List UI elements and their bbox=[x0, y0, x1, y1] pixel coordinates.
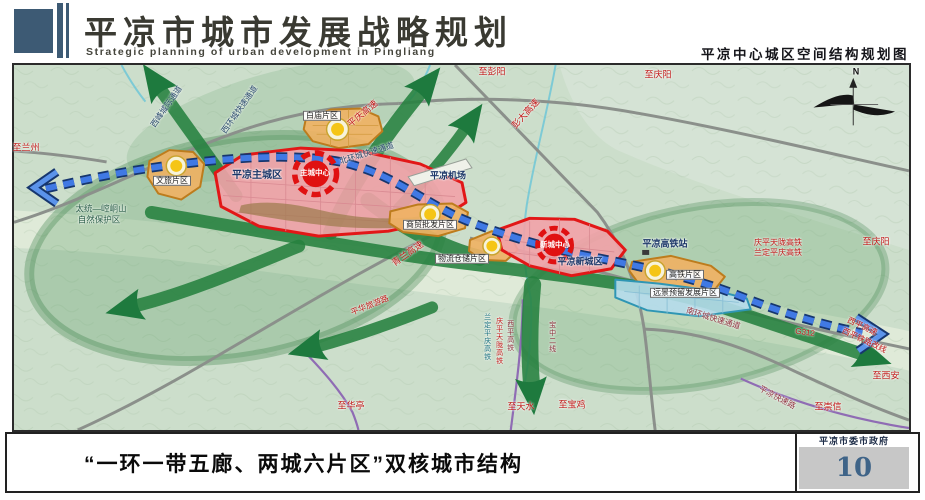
map-label: 至庆阳 bbox=[644, 70, 671, 79]
map-label: 平凉高铁站 bbox=[642, 239, 687, 248]
page-number: 10 bbox=[836, 453, 872, 483]
map-label: 文旅片区 bbox=[153, 176, 191, 186]
header-decor-bar bbox=[57, 3, 63, 58]
map-label: 至西安 bbox=[872, 371, 899, 380]
map-label: 西平高铁 bbox=[506, 320, 513, 352]
map-label: 至天水 bbox=[507, 402, 534, 411]
map-label: 平凉新城区 bbox=[557, 257, 602, 266]
map-label: 商贸批发片区 bbox=[403, 220, 457, 230]
map-label: 至庆阳 bbox=[862, 237, 889, 246]
map-label: 宝中二线 bbox=[548, 321, 555, 353]
map-label: 白庙片区 bbox=[303, 111, 341, 121]
map-label: 兰定平庆高铁 bbox=[483, 313, 490, 361]
map-label: 高铁片区 bbox=[666, 270, 704, 280]
map-label: 太统—崆峒山 bbox=[75, 205, 126, 214]
page-number-box: 10 bbox=[799, 447, 909, 489]
map-label: 主城中心 bbox=[300, 169, 330, 177]
map-label: 平凉主城区 bbox=[232, 171, 282, 182]
map-label: 至华亭 bbox=[337, 401, 364, 410]
map-label: 至宝鸡 bbox=[558, 400, 585, 409]
map-label: 物流仓储片区 bbox=[435, 254, 489, 264]
map-label: 平凉机场 bbox=[430, 171, 466, 180]
map-label: 至崇信 bbox=[814, 402, 841, 411]
page: 平凉市城市发展战略规划 Strategic planning of urban … bbox=[0, 0, 925, 500]
map-label: 至彭阳 bbox=[478, 67, 505, 76]
map-label: 新城中心 bbox=[540, 241, 570, 249]
government-name: 平凉市委市政府 bbox=[797, 434, 911, 447]
map-label: 庆平天陇高铁 bbox=[495, 317, 502, 365]
header-decor-bar bbox=[66, 3, 69, 58]
map-sheet-title: 平凉中心城区空间结构规划图 bbox=[701, 43, 909, 63]
structure-caption: “一环一带五廊、两城六片区”双核城市结构 bbox=[84, 448, 523, 478]
map-label: 兰定平庆高铁 bbox=[754, 249, 802, 257]
map-label: N bbox=[853, 67, 860, 76]
page-subtitle: Strategic planning of urban development … bbox=[86, 46, 436, 58]
header-decor-square bbox=[14, 9, 53, 53]
map-label: 远景预留发展片区 bbox=[650, 288, 720, 298]
map-label: 自然保护区 bbox=[78, 216, 121, 225]
map-label: 至兰州 bbox=[12, 143, 39, 152]
hsr-station-marker bbox=[642, 250, 649, 255]
map-label: 庆平天陇高铁 bbox=[754, 239, 802, 247]
